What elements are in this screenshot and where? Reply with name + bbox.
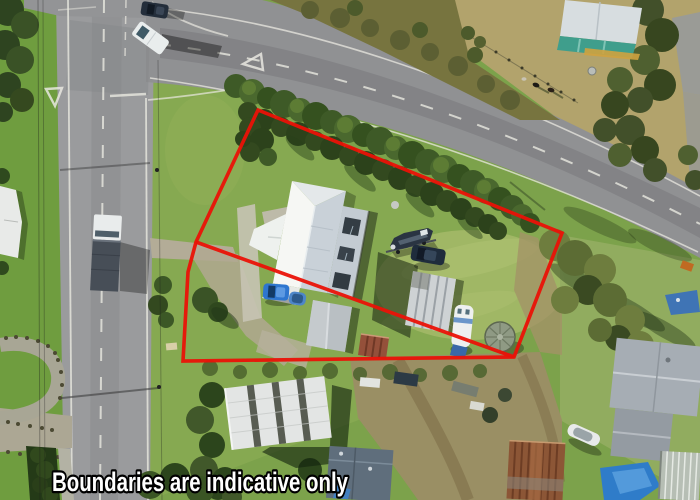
disclaimer-text: Boundaries are indicative only bbox=[52, 467, 348, 497]
water-tank bbox=[588, 67, 596, 75]
teal-shed bbox=[557, 0, 642, 60]
aerial-property-photo: Boundaries are indicative only bbox=[0, 0, 700, 500]
rusty-shack bbox=[358, 334, 389, 359]
water-tank-small bbox=[391, 201, 399, 209]
garage-annex bbox=[306, 300, 360, 354]
greenhouse bbox=[659, 451, 700, 500]
rusty-shed bbox=[506, 441, 565, 500]
